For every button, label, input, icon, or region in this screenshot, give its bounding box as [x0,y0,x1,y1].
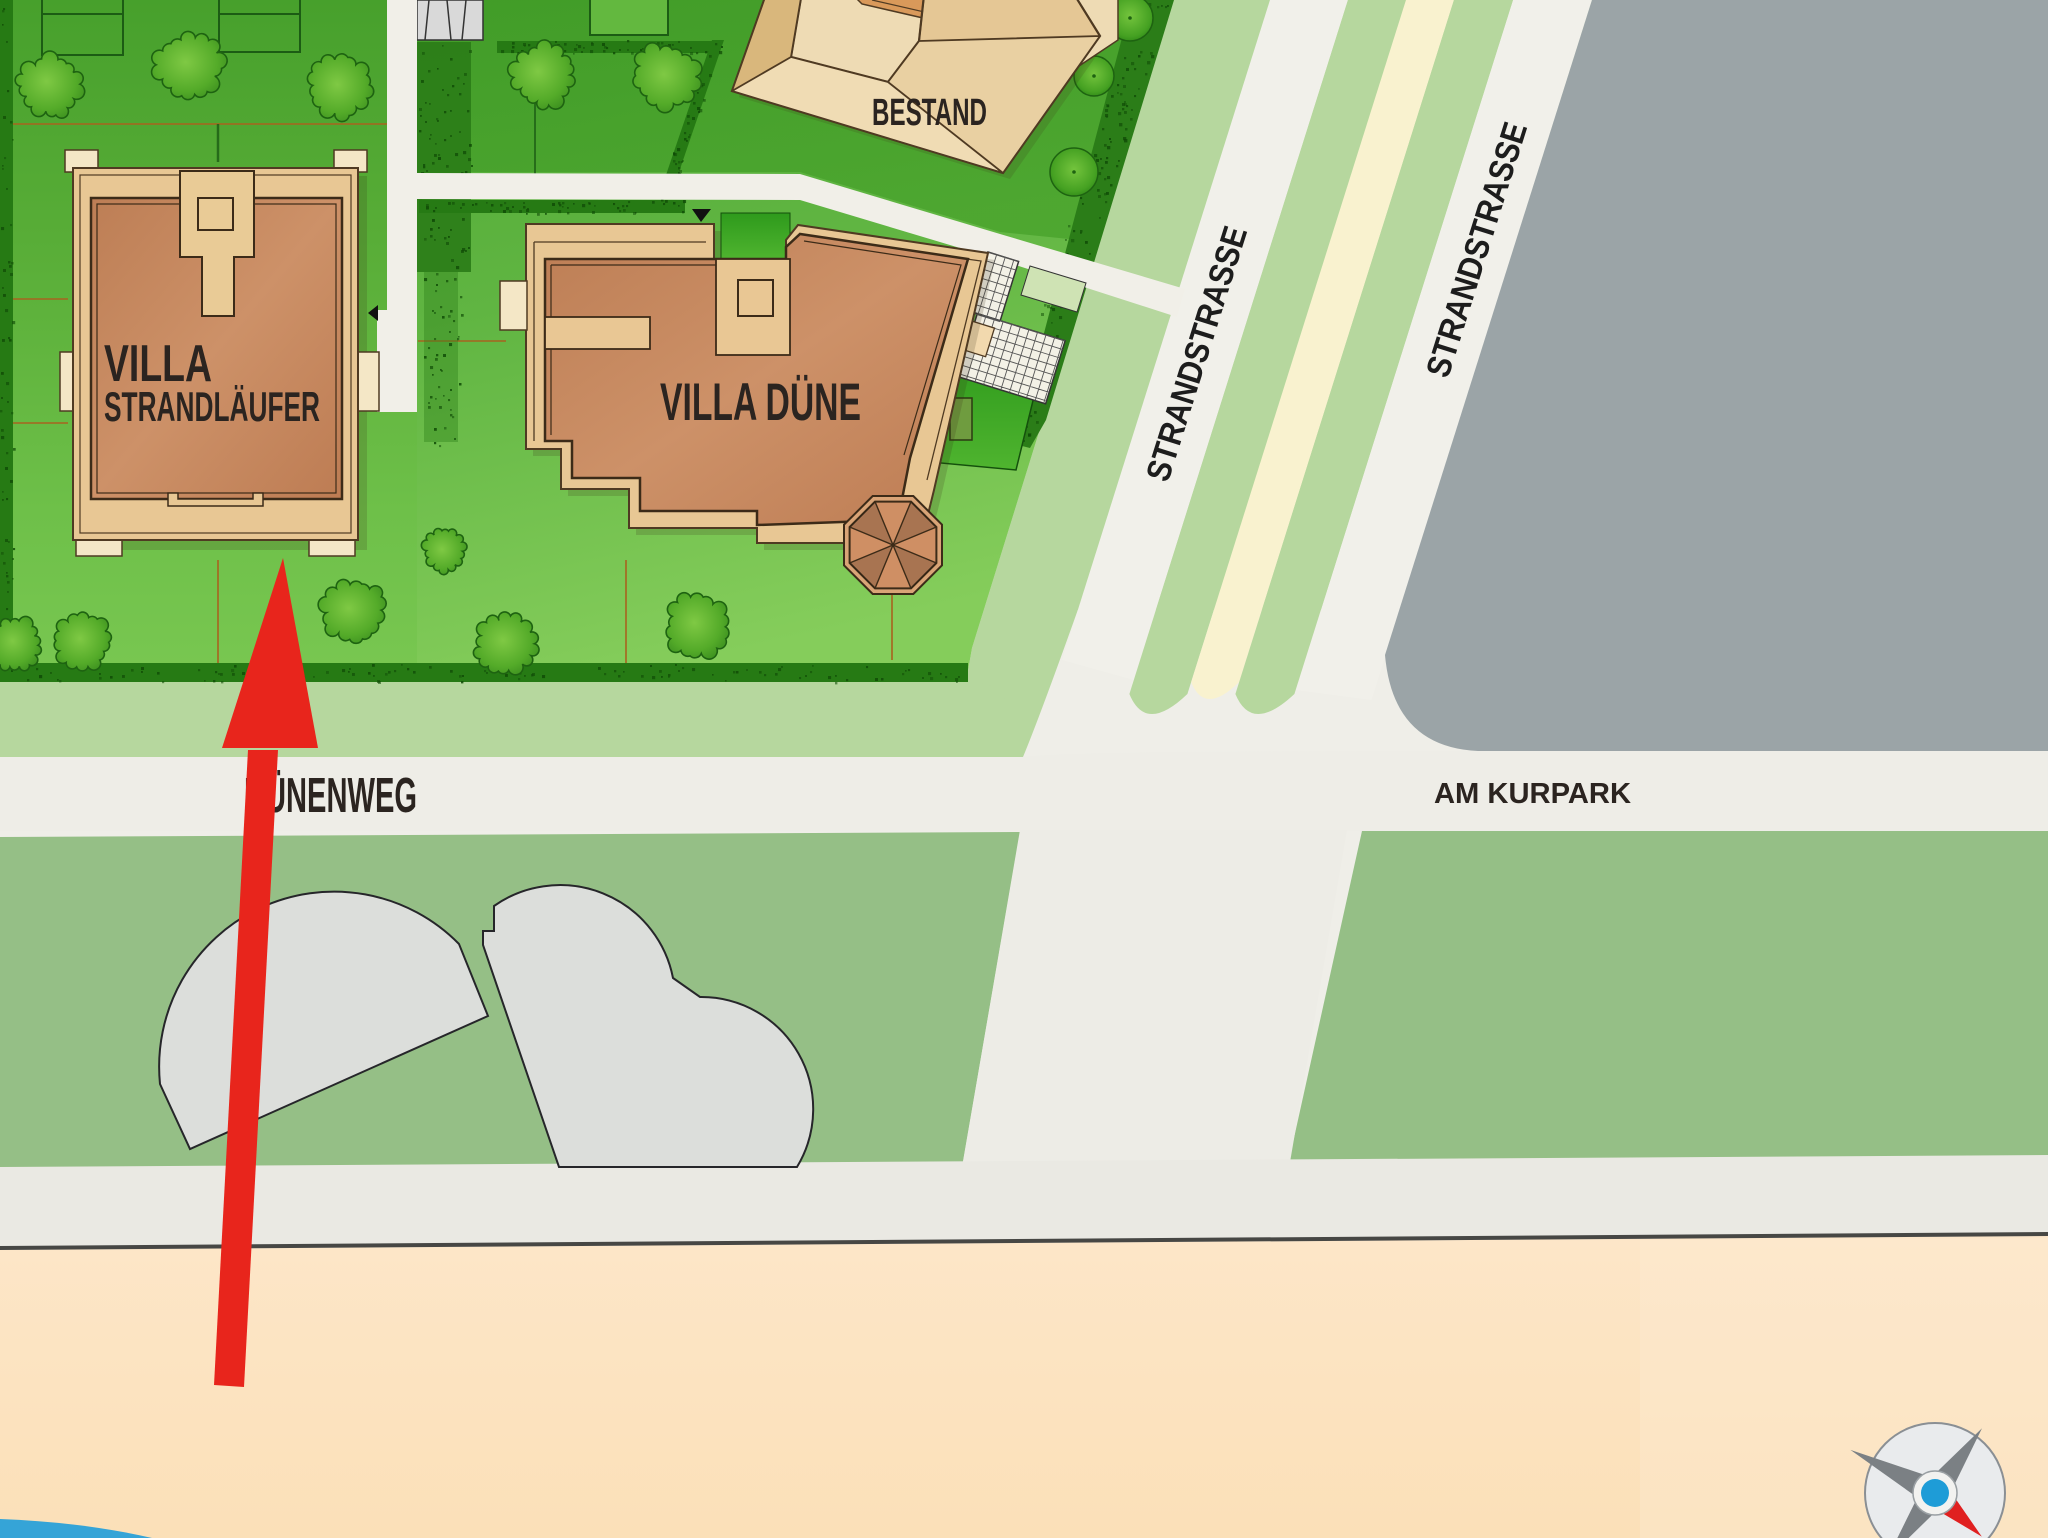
svg-text:VILLA DÜNE: VILLA DÜNE [660,373,861,432]
svg-text:STRANDLÄUFER: STRANDLÄUFER [104,383,320,430]
svg-text:AM KURPARK: AM KURPARK [1434,778,1631,810]
svg-text:BESTAND: BESTAND [872,92,987,134]
